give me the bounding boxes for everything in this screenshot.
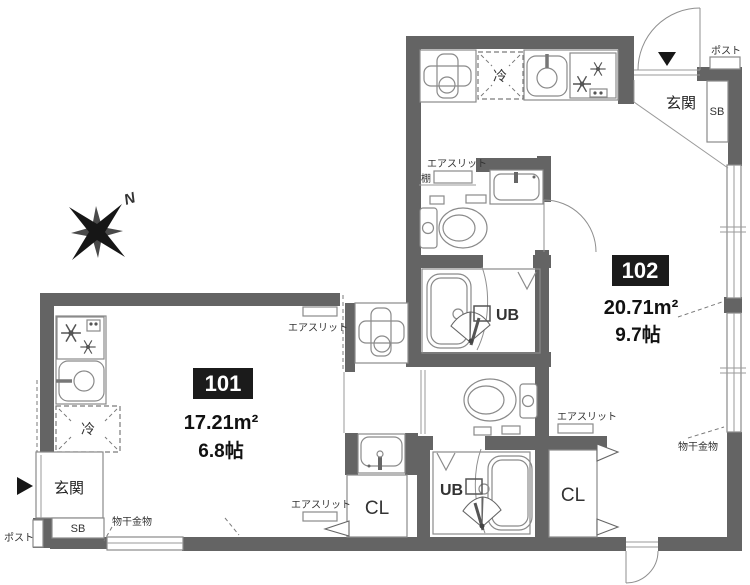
shoe-box-label-102: SB xyxy=(710,106,725,118)
kitchen-101: 冷 xyxy=(56,316,120,452)
terrace-door-102 xyxy=(626,542,658,583)
walls xyxy=(33,36,742,551)
air-slit-label-102-hall: エアスリット xyxy=(427,159,487,170)
toilet-room-101 xyxy=(421,370,537,435)
door-notch-101 xyxy=(437,453,455,470)
labels-101: 101 17.21m² 6.8帖 エアスリット エアスリット 物干金物 xyxy=(104,307,351,541)
shelf-label-102: 棚 xyxy=(421,172,431,185)
room-tatami-102: 9.7帖 xyxy=(615,323,660,346)
washer-pan-icon xyxy=(420,50,476,102)
kitchen-102: 冷 xyxy=(420,50,618,102)
closet-102: CL xyxy=(549,444,618,537)
labels-102: 102 20.71m² 9.7帖 エアスリット 物干金物 xyxy=(557,255,724,453)
washroom-door-arc-102 xyxy=(544,200,596,252)
unit-bath-101: UB xyxy=(433,449,532,534)
room-area-101: 17.21m² xyxy=(184,412,259,434)
window-south-101 xyxy=(107,537,183,550)
closet-vent-icon xyxy=(325,521,349,536)
compass-rose: N xyxy=(69,189,139,260)
floorplan-canvas: 冷 xyxy=(0,0,750,585)
door-notch-102 xyxy=(518,272,536,289)
closet-label-102: CL xyxy=(561,485,585,506)
closet-label-101: CL xyxy=(365,498,389,519)
floor-plan: 冷 xyxy=(0,0,750,585)
entrance-label-101: 玄関 xyxy=(54,480,84,497)
unit-bath-102: UB xyxy=(422,267,540,353)
fridge-space-101: 冷 xyxy=(56,406,120,452)
entrance-label-102: 玄関 xyxy=(666,95,696,112)
room-number-101: 101 xyxy=(205,371,242,396)
window-east-upper xyxy=(720,165,746,298)
room-number-102: 102 xyxy=(622,258,659,283)
room-area-102: 20.71m² xyxy=(604,297,679,319)
entrance-marker-icon-101 xyxy=(17,477,33,495)
shelf-icon xyxy=(434,171,472,183)
air-slit-label-101-top: エアスリット xyxy=(288,323,348,334)
closet-vent-icon xyxy=(597,444,618,461)
washroom-102: エアスリット 棚 xyxy=(419,159,596,252)
shoe-box-102: SB xyxy=(707,81,728,142)
unit-102: 冷 xyxy=(419,8,741,583)
air-slit-icon xyxy=(558,424,593,433)
post-label-101: ポスト xyxy=(4,532,34,544)
fridge-label-101: 冷 xyxy=(81,421,95,437)
toilet-icon-101 xyxy=(464,379,537,435)
window-east-lower xyxy=(720,313,746,432)
post-label-102: ポスト xyxy=(711,45,741,57)
mailbox-101: ポスト xyxy=(4,520,43,547)
mailbox-102: ポスト xyxy=(710,45,741,69)
toilet-icon-102 xyxy=(420,195,487,248)
bathtub-icon-101 xyxy=(488,456,532,530)
air-slit-label-101-bottom: エアスリット xyxy=(291,500,351,511)
folding-door-icon-101 xyxy=(463,497,501,530)
laundry-label-101: 物干金物 xyxy=(112,515,152,528)
folding-door-icon-102 xyxy=(451,312,490,345)
washer-pan-icon-101 xyxy=(355,303,408,363)
unit-bath-label-101: UB xyxy=(440,482,463,499)
air-slit-icon xyxy=(303,512,337,521)
fridge-space-102: 冷 xyxy=(478,52,523,99)
unit-bath-label-102: UB xyxy=(496,307,519,324)
closet-vent-icon xyxy=(597,519,618,535)
unit-101: 冷 玄関 SB ポスト xyxy=(4,295,537,547)
shower-door-track xyxy=(477,267,488,350)
north-label: N xyxy=(122,189,139,209)
air-slit-icon xyxy=(303,307,337,316)
laundry-label-102: 物干金物 xyxy=(678,440,718,453)
counter-102 xyxy=(524,50,618,100)
fridge-label-102: 冷 xyxy=(493,68,507,84)
air-slit-label-102-bottom: エアスリット xyxy=(557,412,617,423)
entrance-marker-icon-102 xyxy=(658,52,676,66)
washbasin-icon-101 xyxy=(358,434,405,473)
shoe-box-101: SB xyxy=(52,518,104,538)
entrance-102: ポスト SB 玄関 xyxy=(634,8,741,168)
washbasin-icon-102 xyxy=(490,170,543,204)
room-tatami-101: 6.8帖 xyxy=(198,439,243,462)
shoe-box-label-101: SB xyxy=(71,523,86,535)
